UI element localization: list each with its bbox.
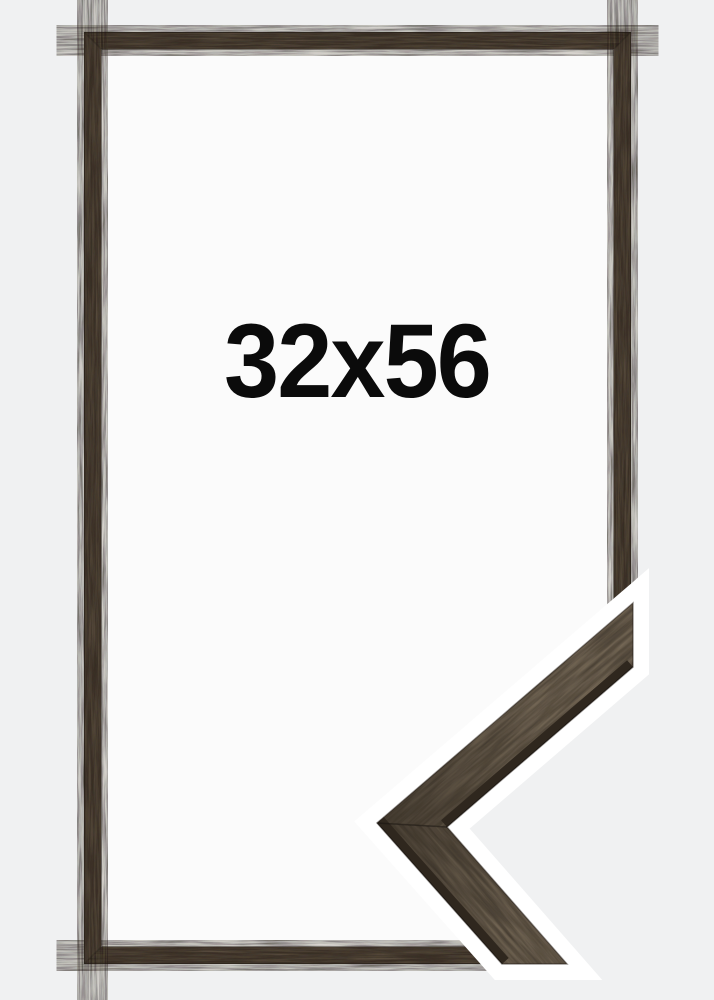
product-photo-frame-preview: 32x56 — [0, 0, 714, 1000]
size-label: 32x56 — [224, 303, 490, 420]
frame-border-left — [84, 32, 101, 964]
frame-scene-svg: 32x56 — [0, 0, 714, 1000]
frame-border-top — [84, 32, 631, 49]
